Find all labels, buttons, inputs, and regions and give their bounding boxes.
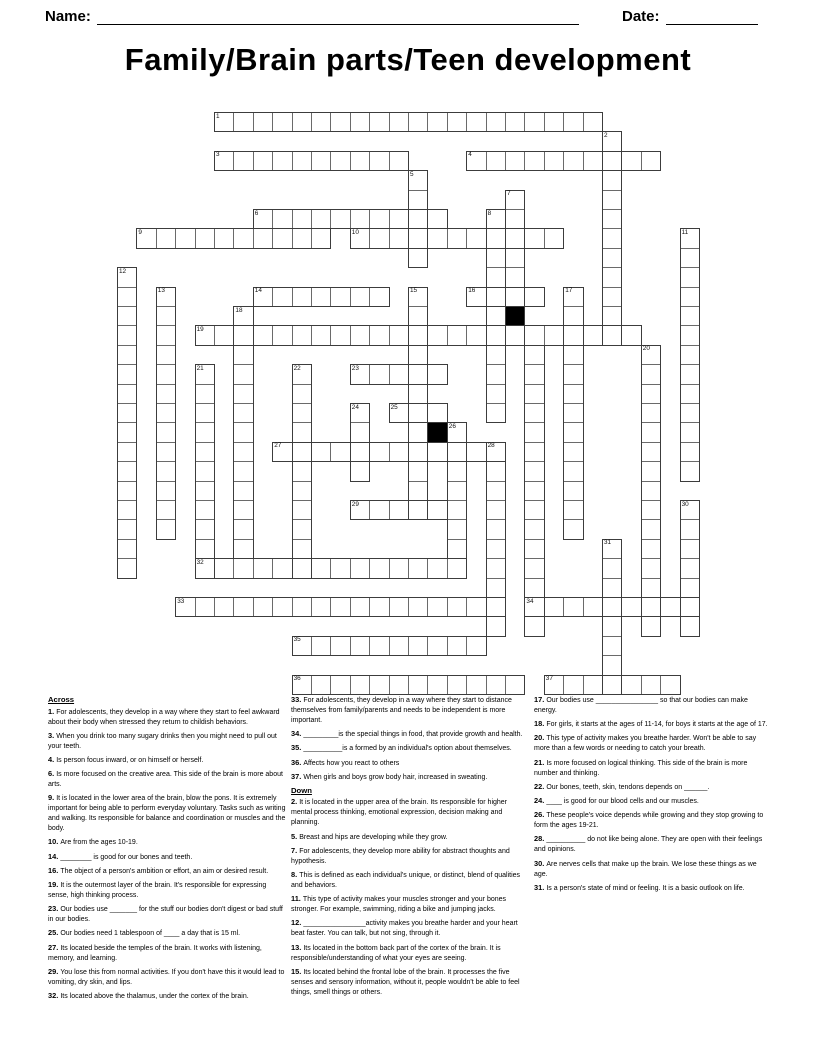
grid-cell[interactable] — [214, 228, 234, 248]
grid-cell[interactable] — [486, 209, 506, 229]
grid-cell[interactable] — [486, 539, 506, 559]
grid-cell[interactable] — [602, 209, 622, 229]
grid-cell[interactable] — [156, 306, 176, 326]
grid-cell[interactable] — [195, 539, 215, 559]
grid-cell[interactable] — [156, 384, 176, 404]
grid-cell[interactable] — [253, 151, 273, 171]
grid-cell[interactable] — [486, 151, 506, 171]
grid-cell[interactable] — [195, 500, 215, 520]
grid-cell[interactable] — [389, 403, 409, 423]
grid-cell[interactable] — [233, 345, 253, 365]
grid-cell[interactable] — [311, 636, 331, 656]
grid-cell[interactable] — [292, 422, 312, 442]
grid-cell[interactable] — [369, 500, 389, 520]
grid-cell[interactable] — [563, 442, 583, 462]
grid-cell[interactable] — [233, 422, 253, 442]
grid-cell[interactable] — [117, 519, 137, 539]
grid-cell[interactable] — [195, 519, 215, 539]
grid-cell[interactable] — [272, 558, 292, 578]
grid-cell[interactable] — [680, 539, 700, 559]
grid-cell[interactable] — [466, 636, 486, 656]
grid-cell[interactable] — [563, 325, 583, 345]
grid-cell[interactable] — [156, 364, 176, 384]
grid-cell[interactable] — [563, 675, 583, 695]
grid-cell[interactable] — [233, 481, 253, 501]
grid-cell[interactable] — [563, 306, 583, 326]
grid-cell[interactable] — [427, 403, 447, 423]
grid-cell[interactable] — [253, 287, 273, 307]
grid-cell[interactable] — [156, 481, 176, 501]
grid-cell[interactable] — [447, 636, 467, 656]
grid-cell[interactable] — [330, 151, 350, 171]
grid-cell[interactable] — [156, 461, 176, 481]
grid-cell[interactable] — [117, 500, 137, 520]
grid-cell[interactable] — [466, 287, 486, 307]
grid-cell[interactable] — [233, 364, 253, 384]
grid-cell[interactable] — [524, 422, 544, 442]
grid-cell[interactable] — [486, 345, 506, 365]
grid-cell[interactable] — [680, 306, 700, 326]
grid-cell[interactable] — [563, 345, 583, 365]
grid-cell[interactable] — [233, 306, 253, 326]
grid-cell[interactable] — [369, 636, 389, 656]
grid-cell[interactable] — [641, 481, 661, 501]
grid-cell[interactable] — [486, 306, 506, 326]
grid-cell[interactable] — [466, 228, 486, 248]
grid-cell[interactable] — [408, 675, 428, 695]
grid-cell[interactable] — [369, 112, 389, 132]
grid-cell[interactable] — [524, 616, 544, 636]
grid-cell[interactable] — [427, 112, 447, 132]
grid-cell[interactable] — [311, 442, 331, 462]
grid-cell[interactable] — [233, 500, 253, 520]
grid-cell[interactable] — [524, 228, 544, 248]
grid-cell[interactable] — [292, 597, 312, 617]
grid-cell[interactable] — [408, 248, 428, 268]
grid-cell[interactable] — [311, 325, 331, 345]
grid-cell[interactable] — [311, 112, 331, 132]
grid-cell[interactable] — [292, 209, 312, 229]
grid-cell[interactable] — [447, 539, 467, 559]
grid-cell[interactable] — [602, 325, 622, 345]
grid-cell[interactable] — [427, 325, 447, 345]
grid-cell[interactable] — [680, 267, 700, 287]
grid-cell[interactable] — [505, 151, 525, 171]
grid-cell[interactable] — [602, 151, 622, 171]
grid-cell[interactable] — [156, 345, 176, 365]
grid-cell[interactable] — [447, 461, 467, 481]
grid-cell[interactable] — [563, 597, 583, 617]
grid-cell[interactable] — [680, 500, 700, 520]
grid-cell[interactable] — [524, 558, 544, 578]
grid-cell[interactable] — [660, 597, 680, 617]
grid-cell[interactable] — [330, 325, 350, 345]
grid-cell[interactable] — [272, 112, 292, 132]
grid-cell[interactable] — [369, 597, 389, 617]
grid-cell[interactable] — [233, 228, 253, 248]
grid-cell[interactable] — [369, 675, 389, 695]
grid-cell[interactable] — [524, 112, 544, 132]
grid-cell[interactable] — [505, 228, 525, 248]
grid-cell[interactable] — [350, 500, 370, 520]
grid-cell[interactable] — [350, 364, 370, 384]
grid-cell[interactable] — [369, 364, 389, 384]
grid-cell[interactable] — [272, 597, 292, 617]
grid-cell[interactable] — [680, 384, 700, 404]
grid-cell[interactable] — [466, 112, 486, 132]
grid-cell[interactable] — [272, 209, 292, 229]
grid-cell[interactable] — [233, 325, 253, 345]
grid-cell[interactable] — [369, 209, 389, 229]
grid-cell[interactable] — [214, 112, 234, 132]
grid-cell[interactable] — [408, 325, 428, 345]
grid-cell[interactable] — [680, 364, 700, 384]
grid-cell[interactable] — [330, 287, 350, 307]
grid-cell[interactable] — [505, 248, 525, 268]
grid-cell[interactable] — [350, 461, 370, 481]
grid-cell[interactable] — [233, 461, 253, 481]
grid-cell[interactable] — [253, 228, 273, 248]
grid-cell[interactable] — [524, 325, 544, 345]
grid-cell[interactable] — [272, 228, 292, 248]
grid-cell[interactable] — [311, 228, 331, 248]
grid-cell[interactable] — [524, 384, 544, 404]
grid-cell[interactable] — [524, 287, 544, 307]
grid-cell[interactable] — [486, 267, 506, 287]
grid-cell[interactable] — [233, 597, 253, 617]
grid-cell[interactable] — [389, 209, 409, 229]
grid-cell[interactable] — [156, 519, 176, 539]
grid-cell[interactable] — [524, 403, 544, 423]
grid-cell[interactable] — [427, 597, 447, 617]
grid-cell[interactable] — [389, 442, 409, 462]
grid-cell[interactable] — [330, 558, 350, 578]
grid-cell[interactable] — [350, 442, 370, 462]
grid-cell[interactable] — [641, 558, 661, 578]
grid-cell[interactable] — [680, 558, 700, 578]
grid-cell[interactable] — [602, 190, 622, 210]
grid-cell[interactable] — [602, 287, 622, 307]
grid-cell[interactable] — [524, 364, 544, 384]
grid-cell[interactable] — [505, 287, 525, 307]
grid-cell[interactable] — [641, 345, 661, 365]
grid-cell[interactable] — [524, 578, 544, 598]
grid-cell[interactable] — [195, 442, 215, 462]
grid-cell[interactable] — [330, 442, 350, 462]
grid-cell[interactable] — [408, 228, 428, 248]
grid-cell[interactable] — [233, 384, 253, 404]
grid-cell[interactable] — [389, 558, 409, 578]
grid-cell[interactable] — [175, 597, 195, 617]
grid-cell[interactable] — [563, 403, 583, 423]
grid-cell[interactable] — [447, 112, 467, 132]
grid-cell[interactable] — [233, 442, 253, 462]
grid-cell[interactable] — [272, 151, 292, 171]
grid-cell[interactable] — [350, 675, 370, 695]
grid-cell[interactable] — [311, 597, 331, 617]
grid-cell[interactable] — [505, 209, 525, 229]
grid-cell[interactable] — [292, 384, 312, 404]
grid-cell[interactable] — [408, 597, 428, 617]
grid-cell[interactable] — [466, 151, 486, 171]
grid-cell[interactable] — [583, 675, 603, 695]
grid-cell[interactable] — [486, 248, 506, 268]
grid-cell[interactable] — [292, 558, 312, 578]
grid-cell[interactable] — [156, 422, 176, 442]
grid-cell[interactable] — [680, 403, 700, 423]
grid-cell[interactable] — [408, 558, 428, 578]
grid-cell[interactable] — [408, 209, 428, 229]
grid-cell[interactable] — [292, 364, 312, 384]
grid-cell[interactable] — [233, 151, 253, 171]
grid-cell[interactable] — [408, 500, 428, 520]
grid-cell[interactable] — [389, 636, 409, 656]
grid-cell[interactable] — [466, 325, 486, 345]
grid-cell[interactable] — [447, 228, 467, 248]
grid-cell[interactable] — [292, 228, 312, 248]
grid-cell[interactable] — [408, 442, 428, 462]
grid-cell[interactable] — [350, 325, 370, 345]
grid-cell[interactable] — [563, 422, 583, 442]
grid-cell[interactable] — [369, 442, 389, 462]
grid-cell[interactable] — [486, 403, 506, 423]
grid-cell[interactable] — [156, 403, 176, 423]
grid-cell[interactable] — [602, 636, 622, 656]
grid-cell[interactable] — [563, 112, 583, 132]
grid-cell[interactable] — [427, 558, 447, 578]
grid-cell[interactable] — [369, 325, 389, 345]
grid-cell[interactable] — [602, 558, 622, 578]
grid-cell[interactable] — [641, 616, 661, 636]
grid-cell[interactable] — [233, 112, 253, 132]
grid-cell[interactable] — [486, 384, 506, 404]
grid-cell[interactable] — [583, 325, 603, 345]
grid-cell[interactable] — [253, 597, 273, 617]
grid-cell[interactable] — [621, 597, 641, 617]
grid-cell[interactable] — [680, 422, 700, 442]
grid-cell[interactable] — [486, 287, 506, 307]
grid-cell[interactable] — [680, 325, 700, 345]
grid-cell[interactable] — [389, 228, 409, 248]
grid-cell[interactable] — [350, 636, 370, 656]
grid-cell[interactable] — [195, 481, 215, 501]
grid-cell[interactable] — [680, 461, 700, 481]
grid-cell[interactable] — [660, 675, 680, 695]
grid-cell[interactable] — [408, 345, 428, 365]
grid-cell[interactable] — [524, 481, 544, 501]
grid-cell[interactable] — [447, 597, 467, 617]
grid-cell[interactable] — [195, 228, 215, 248]
grid-cell[interactable] — [350, 558, 370, 578]
grid-cell[interactable] — [524, 442, 544, 462]
grid-cell[interactable] — [641, 384, 661, 404]
grid-cell[interactable] — [292, 403, 312, 423]
grid-cell[interactable] — [641, 422, 661, 442]
grid-cell[interactable] — [680, 519, 700, 539]
grid-cell[interactable] — [524, 345, 544, 365]
grid-cell[interactable] — [641, 151, 661, 171]
grid-cell[interactable] — [563, 500, 583, 520]
grid-cell[interactable] — [136, 228, 156, 248]
grid-cell[interactable] — [292, 325, 312, 345]
grid-cell[interactable] — [117, 442, 137, 462]
grid-cell[interactable] — [117, 345, 137, 365]
grid-cell[interactable] — [117, 364, 137, 384]
grid-cell[interactable] — [486, 500, 506, 520]
grid-cell[interactable] — [427, 500, 447, 520]
grid-cell[interactable] — [447, 481, 467, 501]
grid-cell[interactable] — [408, 364, 428, 384]
grid-cell[interactable] — [447, 675, 467, 695]
grid-cell[interactable] — [486, 325, 506, 345]
grid-cell[interactable] — [195, 403, 215, 423]
grid-cell[interactable] — [350, 597, 370, 617]
grid-cell[interactable] — [563, 287, 583, 307]
grid-cell[interactable] — [389, 675, 409, 695]
grid-cell[interactable] — [524, 539, 544, 559]
grid-cell[interactable] — [621, 325, 641, 345]
grid-cell[interactable] — [389, 325, 409, 345]
grid-cell[interactable] — [641, 578, 661, 598]
grid-cell[interactable] — [369, 558, 389, 578]
grid-cell[interactable] — [253, 558, 273, 578]
grid-cell[interactable] — [466, 675, 486, 695]
grid-cell[interactable] — [641, 539, 661, 559]
grid-cell[interactable] — [641, 500, 661, 520]
grid-cell[interactable] — [214, 558, 234, 578]
grid-cell[interactable] — [117, 403, 137, 423]
grid-cell[interactable] — [563, 384, 583, 404]
grid-cell[interactable] — [292, 287, 312, 307]
grid-cell[interactable] — [427, 442, 447, 462]
grid-cell[interactable] — [408, 422, 428, 442]
grid-cell[interactable] — [680, 248, 700, 268]
grid-cell[interactable] — [195, 384, 215, 404]
grid-cell[interactable] — [602, 655, 622, 675]
grid-cell[interactable] — [680, 616, 700, 636]
grid-cell[interactable] — [117, 306, 137, 326]
grid-cell[interactable] — [195, 422, 215, 442]
grid-cell[interactable] — [350, 209, 370, 229]
grid-cell[interactable] — [214, 325, 234, 345]
grid-cell[interactable] — [389, 151, 409, 171]
grid-cell[interactable] — [272, 287, 292, 307]
grid-cell[interactable] — [233, 558, 253, 578]
grid-cell[interactable] — [427, 228, 447, 248]
grid-cell[interactable] — [117, 461, 137, 481]
grid-cell[interactable] — [350, 287, 370, 307]
grid-cell[interactable] — [350, 422, 370, 442]
grid-cell[interactable] — [292, 151, 312, 171]
grid-cell[interactable] — [486, 558, 506, 578]
grid-cell[interactable] — [641, 364, 661, 384]
grid-cell[interactable] — [408, 190, 428, 210]
grid-cell[interactable] — [602, 675, 622, 695]
grid-cell[interactable] — [117, 481, 137, 501]
grid-cell[interactable] — [195, 364, 215, 384]
grid-cell[interactable] — [486, 461, 506, 481]
grid-cell[interactable] — [117, 558, 137, 578]
grid-cell[interactable] — [369, 151, 389, 171]
grid-cell[interactable] — [117, 539, 137, 559]
grid-cell[interactable] — [292, 500, 312, 520]
grid-cell[interactable] — [486, 442, 506, 462]
grid-cell[interactable] — [175, 228, 195, 248]
grid-cell[interactable] — [195, 461, 215, 481]
grid-cell[interactable] — [486, 519, 506, 539]
grid-cell[interactable] — [311, 209, 331, 229]
grid-cell[interactable] — [641, 519, 661, 539]
grid-cell[interactable] — [330, 209, 350, 229]
grid-cell[interactable] — [621, 675, 641, 695]
grid-cell[interactable] — [427, 675, 447, 695]
grid-cell[interactable] — [292, 481, 312, 501]
grid-cell[interactable] — [486, 481, 506, 501]
grid-cell[interactable] — [447, 500, 467, 520]
grid-cell[interactable] — [311, 151, 331, 171]
grid-cell[interactable] — [330, 636, 350, 656]
grid-cell[interactable] — [350, 112, 370, 132]
grid-cell[interactable] — [602, 248, 622, 268]
grid-cell[interactable] — [563, 519, 583, 539]
grid-cell[interactable] — [427, 636, 447, 656]
grid-cell[interactable] — [486, 675, 506, 695]
grid-cell[interactable] — [447, 422, 467, 442]
grid-cell[interactable] — [408, 306, 428, 326]
grid-cell[interactable] — [505, 112, 525, 132]
grid-cell[interactable] — [292, 442, 312, 462]
grid-cell[interactable] — [272, 442, 292, 462]
grid-cell[interactable] — [117, 384, 137, 404]
grid-cell[interactable] — [505, 325, 525, 345]
grid-cell[interactable] — [156, 442, 176, 462]
grid-cell[interactable] — [583, 112, 603, 132]
grid-cell[interactable] — [253, 209, 273, 229]
grid-cell[interactable] — [156, 325, 176, 345]
grid-cell[interactable] — [447, 519, 467, 539]
grid-cell[interactable] — [330, 675, 350, 695]
grid-cell[interactable] — [408, 636, 428, 656]
grid-cell[interactable] — [563, 151, 583, 171]
grid-cell[interactable] — [408, 403, 428, 423]
grid-cell[interactable] — [602, 170, 622, 190]
grid-cell[interactable] — [292, 539, 312, 559]
grid-cell[interactable] — [195, 325, 215, 345]
grid-cell[interactable] — [486, 578, 506, 598]
grid-cell[interactable] — [350, 151, 370, 171]
grid-cell[interactable] — [544, 675, 564, 695]
grid-cell[interactable] — [486, 616, 506, 636]
grid-cell[interactable] — [680, 287, 700, 307]
grid-cell[interactable] — [466, 442, 486, 462]
grid-cell[interactable] — [602, 306, 622, 326]
grid-cell[interactable] — [408, 287, 428, 307]
grid-cell[interactable] — [680, 345, 700, 365]
grid-cell[interactable] — [447, 558, 467, 578]
grid-cell[interactable] — [272, 325, 292, 345]
grid-cell[interactable] — [544, 597, 564, 617]
grid-cell[interactable] — [602, 597, 622, 617]
grid-cell[interactable] — [233, 403, 253, 423]
grid-cell[interactable] — [544, 228, 564, 248]
grid-cell[interactable] — [524, 461, 544, 481]
grid-cell[interactable] — [602, 228, 622, 248]
grid-cell[interactable] — [389, 112, 409, 132]
grid-cell[interactable] — [214, 597, 234, 617]
grid-cell[interactable] — [292, 636, 312, 656]
grid-cell[interactable] — [369, 228, 389, 248]
grid-cell[interactable] — [117, 267, 137, 287]
